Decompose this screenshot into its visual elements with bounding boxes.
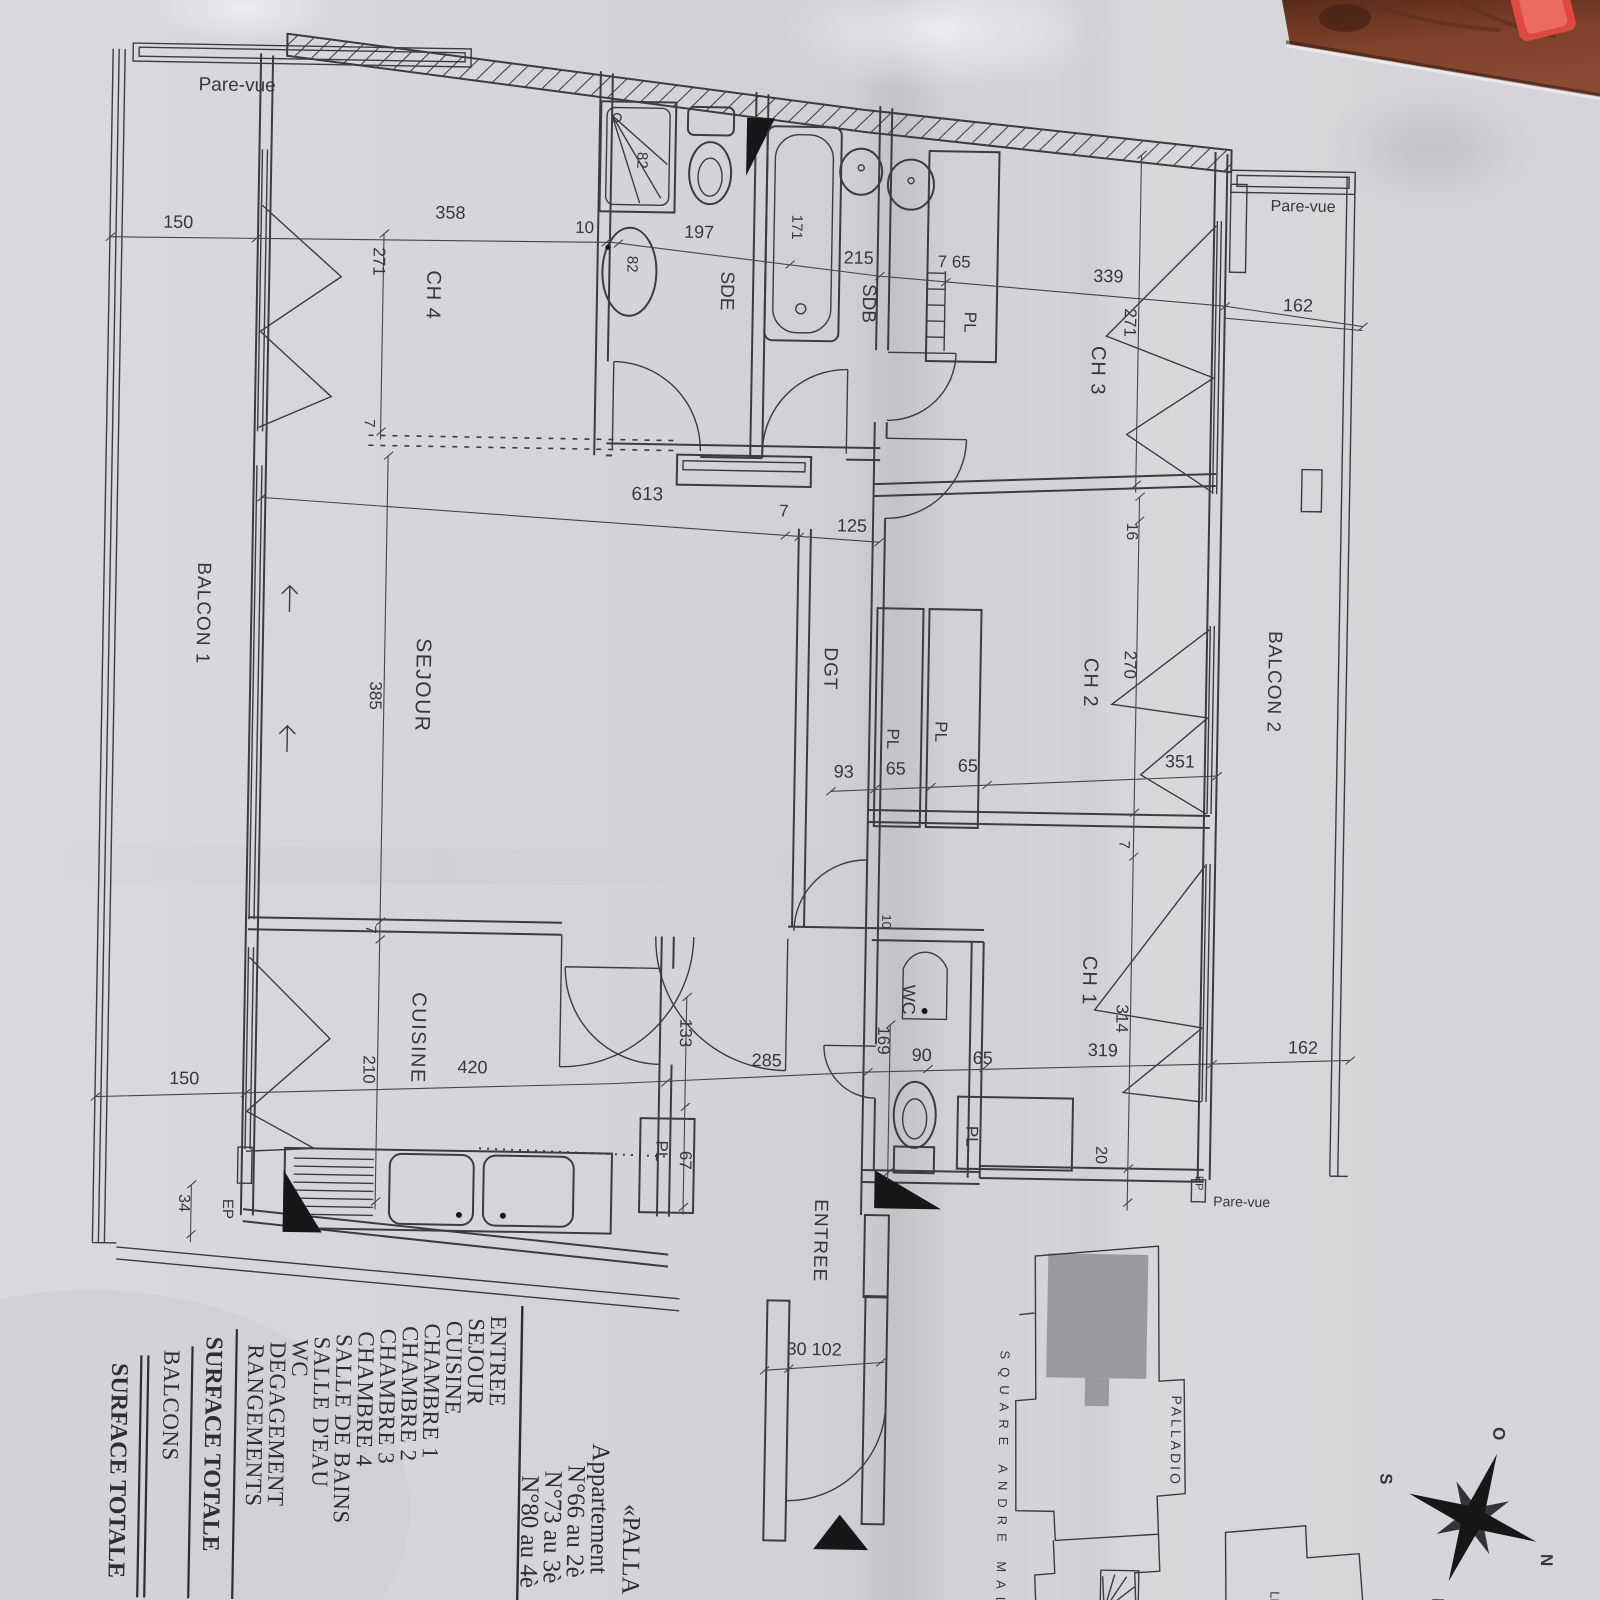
pare-vue-label-top-right: Pare-vue [1270, 198, 1335, 216]
fixture-label-shower-82: 82 [633, 152, 650, 169]
room-label-wc: WC [898, 985, 919, 1015]
dim-67: 67 [676, 1151, 695, 1170]
legend-balcons: BALCONS [158, 1350, 185, 1461]
label-ep-balcony2: EP [1192, 1176, 1204, 1191]
dim-93: 93 [834, 761, 854, 781]
fixture-label-bathtub-171: 171 [788, 215, 805, 240]
dim-150-bottom: 150 [169, 1068, 199, 1089]
dim-271-ch4: 271 [369, 247, 388, 276]
legend-item-rangements: RANGEMENTS [241, 1344, 269, 1507]
project-n80: N°80 au 4è [514, 1475, 543, 1588]
dim-90: 90 [912, 1045, 932, 1065]
site-label-palladio: PALLADIO [1167, 1395, 1185, 1487]
compass-s: S [1376, 1473, 1395, 1485]
dim-270: 270 [1120, 650, 1139, 679]
dim-271-ch3: 271 [1120, 308, 1139, 337]
dim-125: 125 [837, 515, 867, 536]
dim-162-top: 162 [1283, 295, 1313, 316]
dim-613: 613 [631, 484, 663, 506]
dim-162-bottom: 162 [1288, 1037, 1318, 1058]
dim-351: 351 [1165, 751, 1195, 772]
room-label-ch3: CH 3 [1086, 346, 1109, 396]
pare-vue-label-top-left: Pare-vue [198, 74, 275, 96]
dim-150-top: 150 [163, 212, 193, 233]
room-label-sejour: SEJOUR [410, 638, 435, 733]
dim-197: 197 [684, 222, 714, 243]
site-label-le: LE [1267, 1591, 1282, 1600]
dim-210: 210 [359, 1055, 378, 1084]
dim-339: 339 [1093, 266, 1123, 287]
closet-label-pl-sdb: PL [960, 312, 979, 333]
room-label-balcon2: BALCON 2 [1262, 631, 1285, 733]
dim-30-102: 30 102 [786, 1339, 841, 1360]
photo-of-floor-plan: Pare-vue Pare-vue Pare-vue 150 358 10 19… [0, 0, 1600, 1600]
dim-133: 133 [676, 1019, 695, 1048]
dim-65-pl2: 65 [958, 756, 978, 776]
dim-319: 319 [1088, 1040, 1118, 1061]
compass-n: N [1537, 1554, 1556, 1567]
room-label-sdb: SDB [858, 284, 880, 323]
closet-label-pl-dgt2: PL [931, 721, 950, 742]
dim-65-pl1: 65 [886, 758, 906, 778]
fixture-label-basin-82: 82 [623, 256, 640, 273]
closet-label-pl-dgt1: PL [883, 728, 902, 749]
site-plan-highlighted-unit [1046, 1253, 1148, 1379]
dim-420: 420 [457, 1057, 487, 1078]
dim-10: 10 [575, 218, 594, 237]
dim-16: 16 [1123, 522, 1140, 540]
dim-34: 34 [175, 1194, 192, 1212]
dim-215: 215 [844, 248, 874, 269]
dim-7-ch2: 7 [1115, 840, 1132, 849]
dim-314: 314 [1112, 1004, 1131, 1033]
room-label-ch4: CH 4 [422, 270, 445, 320]
dim-169: 169 [874, 1026, 893, 1055]
dim-358: 358 [435, 202, 465, 223]
dim-65-wc: 65 [973, 1048, 993, 1068]
table-knot [1319, 4, 1371, 32]
project-name: «PALLA [616, 1504, 645, 1595]
legend-surface-totale-1: SURFACE TOTALE [197, 1336, 227, 1551]
label-ep: EP [219, 1199, 236, 1219]
pare-vue-label-bottom-right: Pare-vue [1213, 1193, 1270, 1210]
dim-7-65: 7 65 [937, 252, 970, 272]
closet-label-pl-ch1: PL [962, 1126, 981, 1147]
room-label-balcon1: BALCON 1 [191, 562, 214, 664]
paper-background [0, 0, 1600, 1600]
room-label-sde: SDE [716, 271, 738, 310]
dim-7-sejour: 7 [779, 501, 789, 520]
room-label-entree: ENTREE [809, 1199, 831, 1282]
dim-7-cuisine: 7 [362, 925, 379, 934]
legend-surface-totale-2: SURFACE TOTALE [103, 1363, 133, 1578]
dim-285: 285 [751, 1050, 781, 1071]
room-label-ch2: CH 2 [1079, 658, 1102, 708]
dim-10-ch1: 10 [879, 914, 894, 929]
closet-label-pl-entree: PL [652, 1140, 671, 1161]
dim-7-ch4: 7 [361, 419, 378, 428]
dim-385: 385 [366, 681, 385, 710]
room-label-ch1: CH 1 [1078, 956, 1101, 1006]
room-label-dgt: DGT [819, 647, 841, 690]
floor-plan-photo: Pare-vue Pare-vue Pare-vue 150 358 10 19… [0, 0, 1600, 1600]
dim-20: 20 [1092, 1146, 1109, 1164]
compass-o: O [1489, 1427, 1508, 1441]
room-label-cuisine: CUISINE [406, 992, 430, 1084]
